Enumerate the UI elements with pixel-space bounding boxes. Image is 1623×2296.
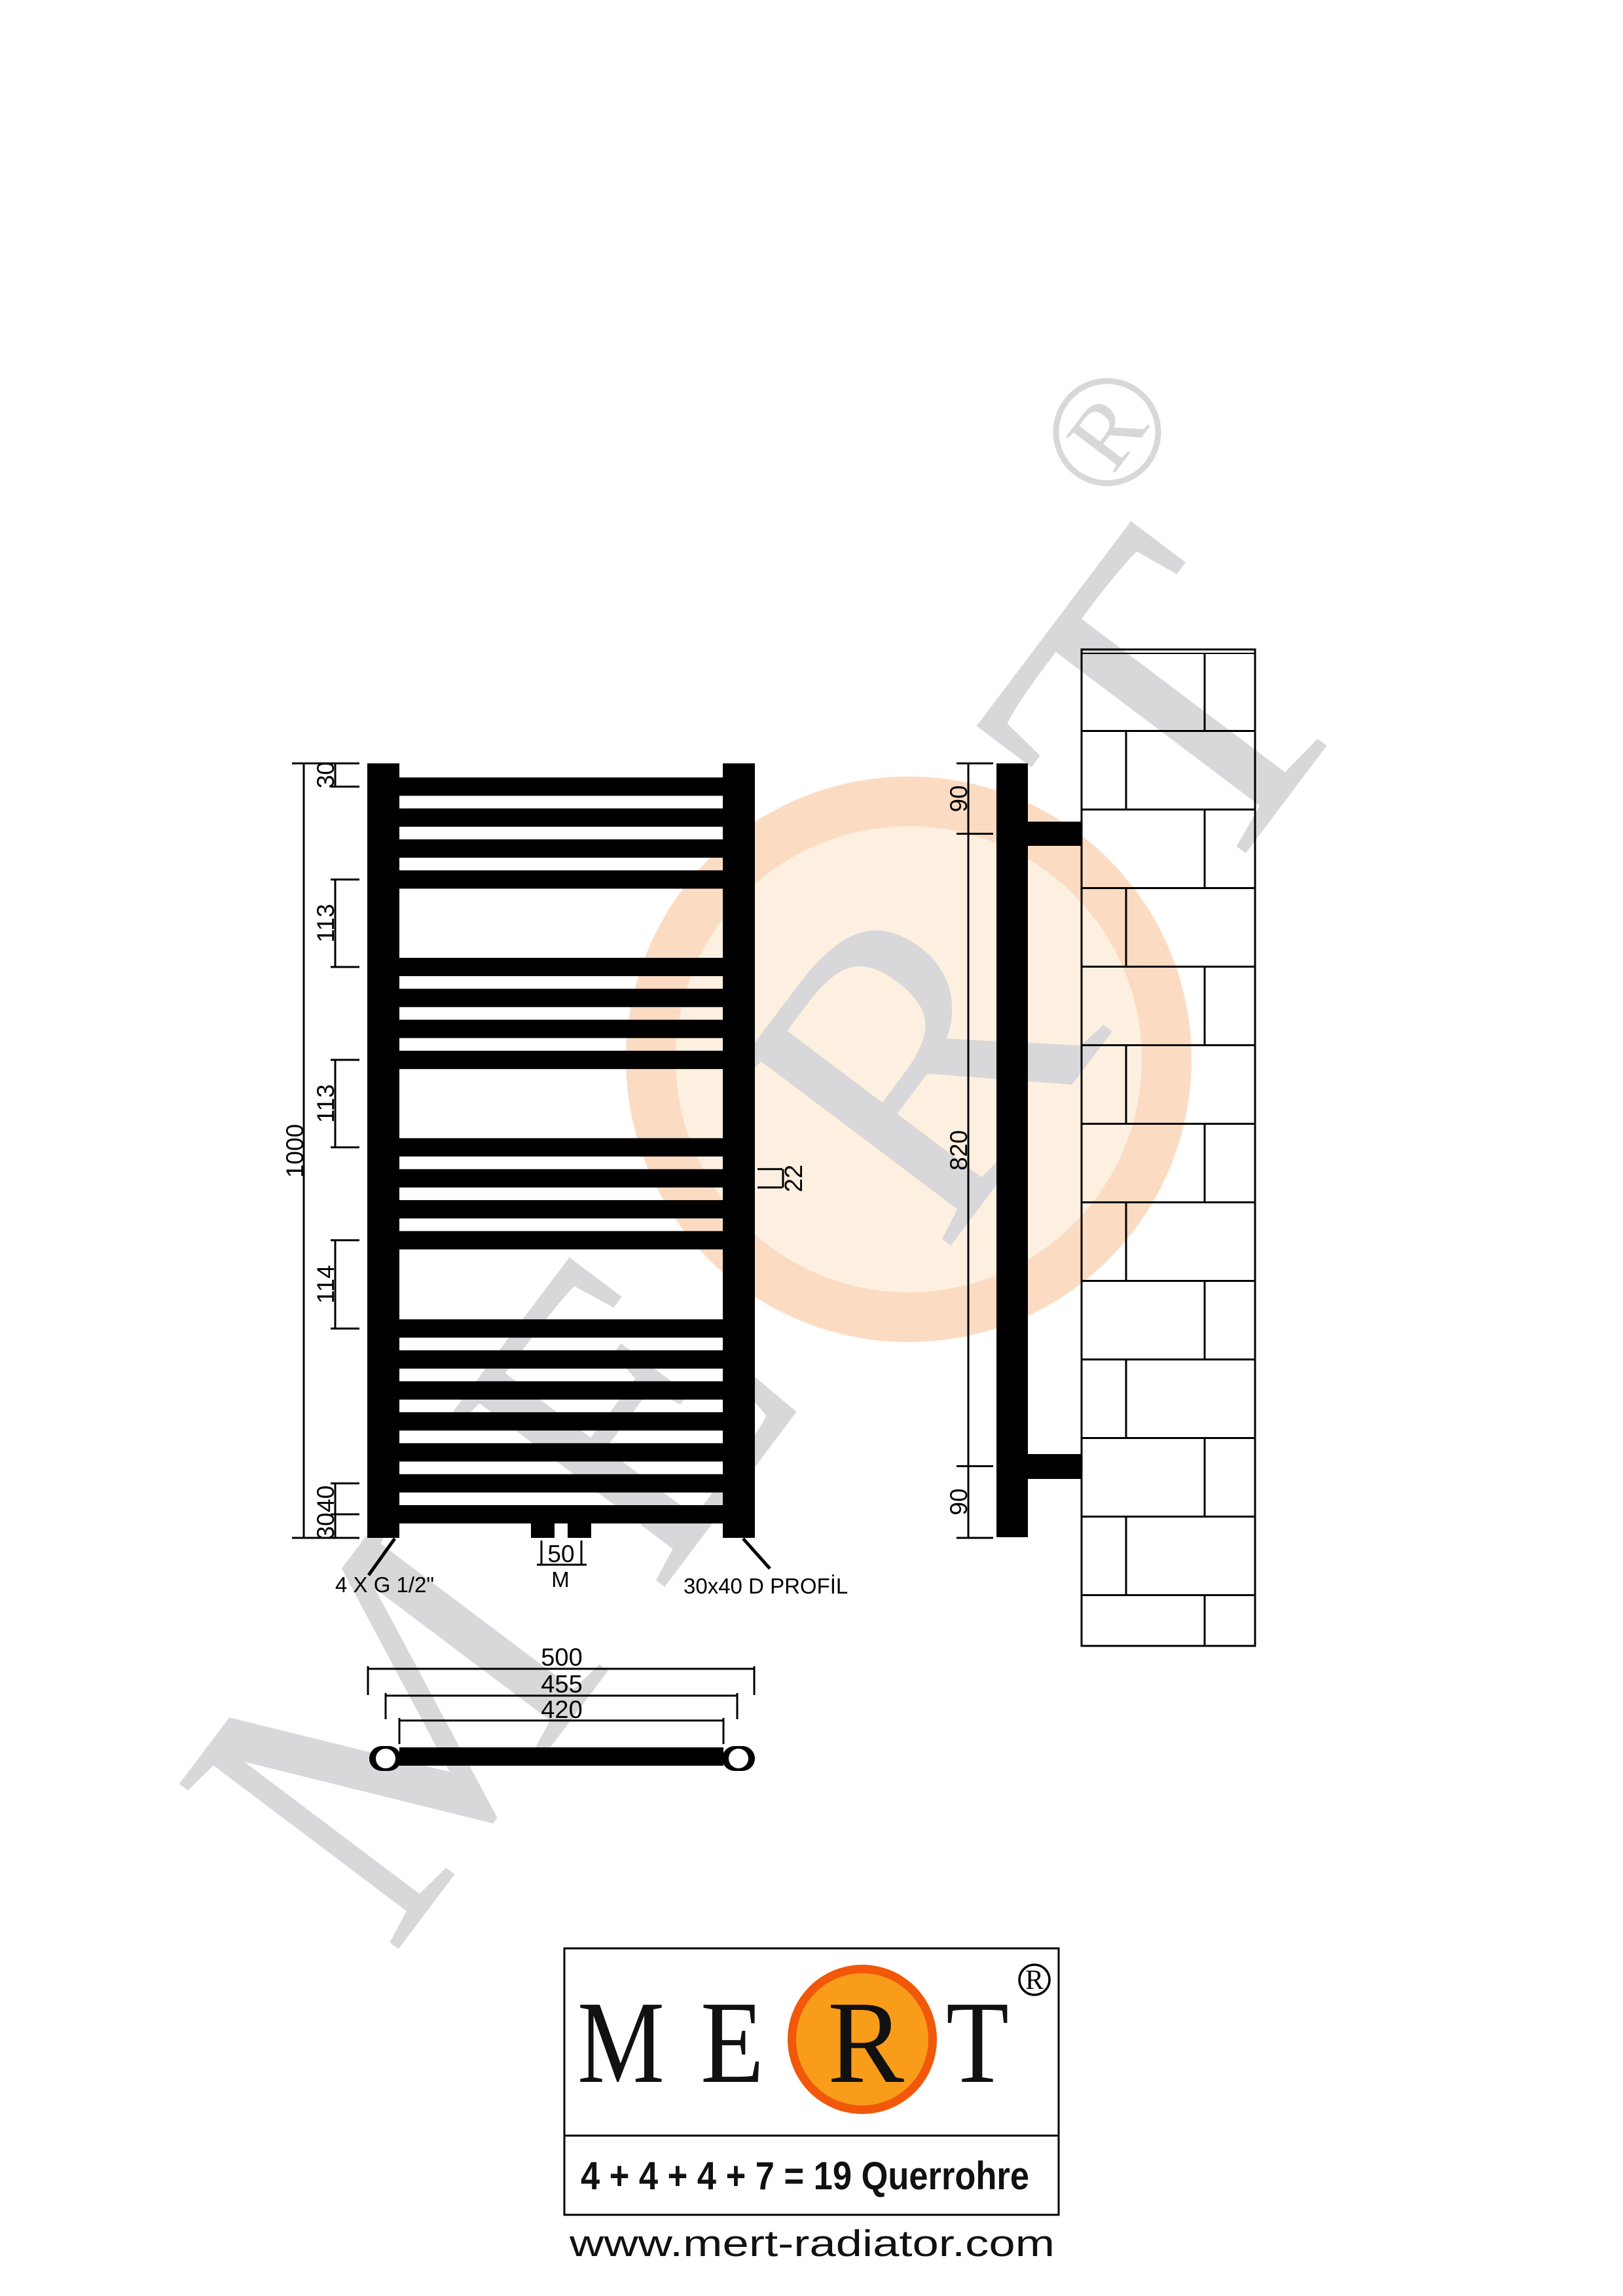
svg-text:4 + 4 + 4 + 7 = 19 Querrohre: 4 + 4 + 4 + 7 = 19 Querrohre <box>581 2154 1029 2198</box>
svg-text:30: 30 <box>312 761 339 788</box>
svg-text:R: R <box>828 1977 904 2107</box>
svg-text:40: 40 <box>312 1485 339 1512</box>
svg-text:T: T <box>946 1977 1009 2107</box>
svg-text:30: 30 <box>312 1512 339 1539</box>
svg-text:R: R <box>1025 1965 1044 1995</box>
svg-text:M: M <box>551 1567 570 1592</box>
svg-text:90: 90 <box>945 785 972 812</box>
svg-text:455: 455 <box>541 1671 582 1698</box>
svg-text:1000: 1000 <box>282 1124 308 1178</box>
svg-text:114: 114 <box>312 1265 339 1303</box>
svg-text:www.mert-radiator.com: www.mert-radiator.com <box>569 2223 1055 2265</box>
svg-text:90: 90 <box>945 1488 972 1515</box>
svg-text:22: 22 <box>780 1165 808 1192</box>
svg-text:4 X G 1/2": 4 X G 1/2" <box>335 1573 434 1597</box>
svg-text:420: 420 <box>541 1696 582 1724</box>
svg-text:E: E <box>701 1977 764 2107</box>
svg-text:820: 820 <box>945 1130 972 1171</box>
svg-text:M: M <box>577 1977 665 2107</box>
svg-text:50: 50 <box>547 1540 574 1567</box>
svg-text:500: 500 <box>541 1644 582 1671</box>
svg-text:113: 113 <box>312 904 339 943</box>
svg-text:113: 113 <box>312 1084 339 1123</box>
svg-text:30x40 D PROFİL: 30x40 D PROFİL <box>684 1574 848 1598</box>
